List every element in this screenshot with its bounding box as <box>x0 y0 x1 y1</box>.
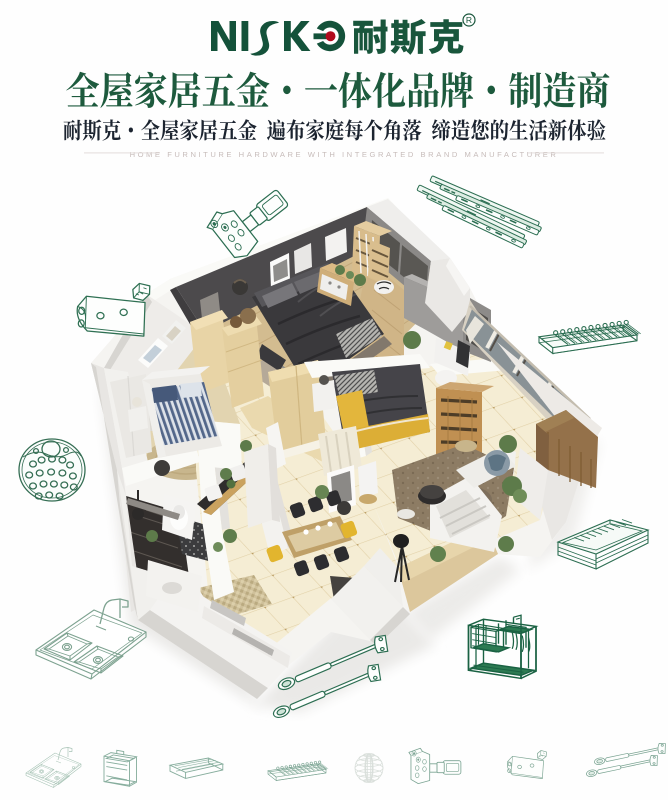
svg-text:R: R <box>466 15 472 25</box>
svg-text:HOME FURNITURE HARDWARE WITH I: HOME FURNITURE HARDWARE WITH INTEGRATED … <box>130 150 559 159</box>
